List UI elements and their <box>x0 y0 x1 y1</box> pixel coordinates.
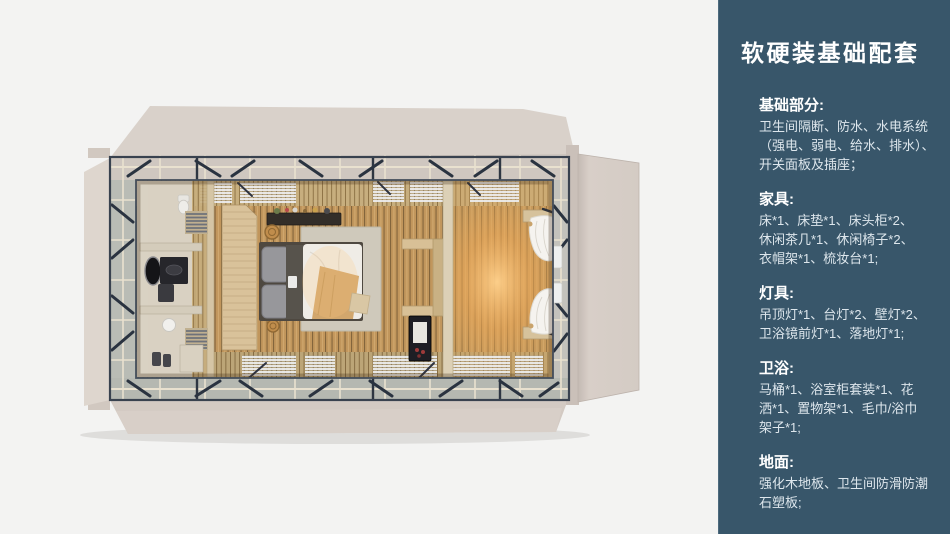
woven-basket <box>267 320 279 332</box>
left-wall-flap <box>84 158 110 406</box>
curtain-tie <box>529 324 534 329</box>
section-heading: 地面: <box>759 453 938 473</box>
floorplan-svg <box>0 0 718 534</box>
curtain-tie <box>528 222 533 227</box>
bathroom-divider <box>140 306 202 314</box>
cushion <box>349 293 370 314</box>
section-body: 强化木地板、卫生间防滑防潮 石塑板; <box>759 474 938 512</box>
slipper <box>152 352 161 366</box>
section-body: 卫生间隔断、防水、水电系统 （强电、弱电、给水、排水）、 开关面板及插座； <box>759 117 938 174</box>
right-wall-flap <box>578 154 639 402</box>
bathroom-divider <box>140 243 202 251</box>
section-heading: 卫浴: <box>759 359 938 379</box>
section-body: 床*1、床垫*1、床头柜*2、 休闲茶几*1、休闲椅子*2、 衣帽架*1、梳妆台… <box>759 211 938 268</box>
round-mirror <box>145 257 161 285</box>
dark-towel <box>158 284 174 302</box>
section-lighting: 灯具: 吊顶灯*1、台灯*2、壁灯*2、 卫浴镜前灯*1、落地灯*1; <box>759 284 938 343</box>
bathroom <box>137 181 214 377</box>
section-furniture: 家具: 床*1、床垫*1、床头柜*2、 休闲茶几*1、休闲椅子*2、 衣帽架*1… <box>759 190 938 268</box>
room-partition <box>443 181 453 377</box>
section-heading: 灯具: <box>759 284 938 304</box>
pillow <box>262 247 289 282</box>
info-sidebar: 软硬装基础配套 基础部分: 卫生间隔断、防水、水电系统 （强电、弱电、给水、排水… <box>718 0 950 534</box>
room-interior <box>136 180 567 378</box>
floorplan-render <box>0 0 718 534</box>
shower-bench <box>180 345 203 372</box>
wardrobe-panel <box>222 205 257 350</box>
section-bathroom: 卫浴: 马桶*1、浴室柜套装*1、花 洒*1、置物架*1、毛巾/浴巾 架子*1; <box>759 359 938 437</box>
minibar-cabinet <box>409 316 431 361</box>
top-wall-flap <box>110 106 575 158</box>
section-heading: 基础部分: <box>759 96 938 116</box>
woven-basket <box>265 225 279 239</box>
section-basics: 基础部分: 卫生间隔断、防水、水电系统 （强电、弱电、给水、排水）、 开关面板及… <box>759 96 938 174</box>
kettle <box>163 319 176 332</box>
pillow <box>262 285 289 318</box>
bottom-flap-lip <box>116 408 562 434</box>
section-heading: 家具: <box>759 190 938 210</box>
section-body: 吊顶灯*1、台灯*2、壁灯*2、 卫浴镜前灯*1、落地灯*1; <box>759 305 938 343</box>
bathroom-partition <box>207 181 214 377</box>
slide: 软硬装基础配套 基础部分: 卫生间隔断、防水、水电系统 （强电、弱电、给水、排水… <box>0 0 950 534</box>
section-flooring: 地面: 强化木地板、卫生间防滑防潮 石塑板; <box>759 453 938 512</box>
left-flap-tab <box>88 148 110 158</box>
bedside-tray <box>288 276 297 288</box>
slipper <box>163 354 171 367</box>
bed <box>259 227 381 331</box>
sidebar-title: 软硬装基础配套 <box>741 38 938 68</box>
section-body: 马桶*1、浴室柜套装*1、花 洒*1、置物架*1、毛巾/浴巾 架子*1; <box>759 380 938 437</box>
sink <box>166 265 182 275</box>
